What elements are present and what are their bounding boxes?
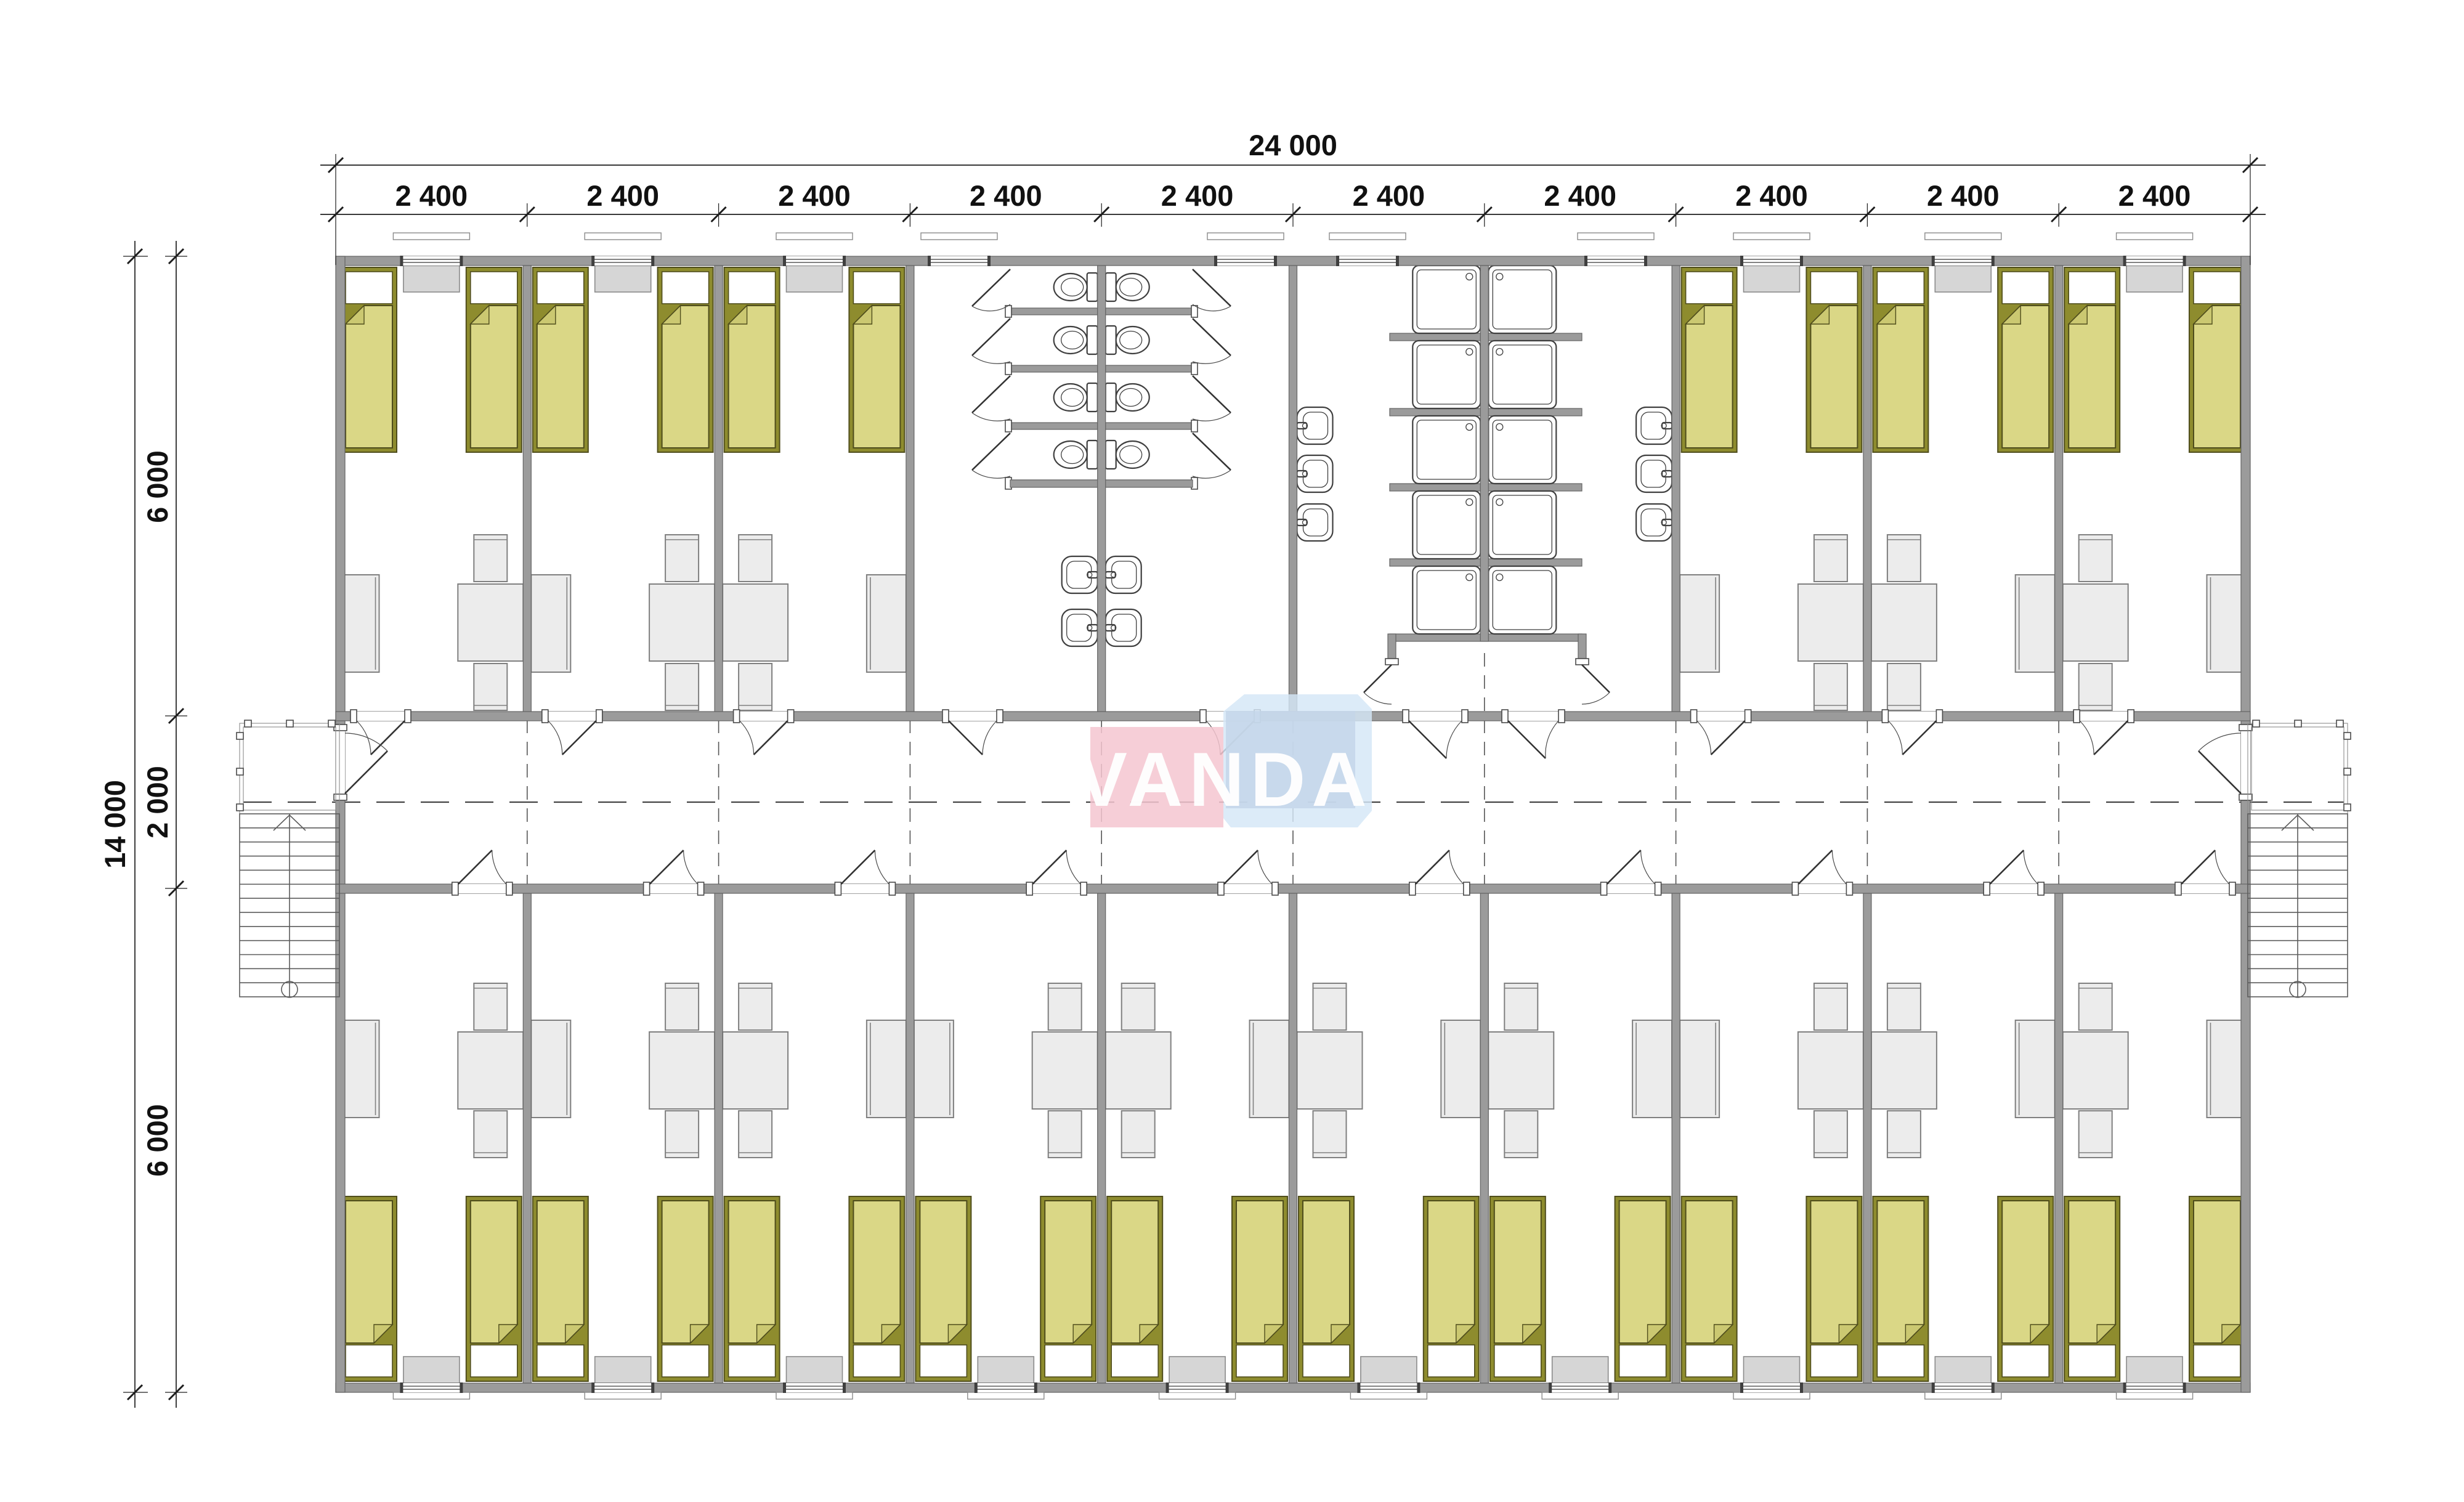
landing-post <box>237 804 243 811</box>
window-jamb <box>2183 1382 2186 1393</box>
shower-lobby-door-arc <box>1364 692 1392 704</box>
bed-blanket <box>920 1201 967 1343</box>
door-jamb <box>698 882 704 895</box>
wardrobe <box>1680 575 1719 672</box>
wardrobe <box>531 575 570 672</box>
window-jamb <box>1336 256 1339 266</box>
sink <box>1297 504 1333 541</box>
radiator <box>2126 1357 2182 1383</box>
corridor-wall-bottom <box>336 884 2250 893</box>
door-opening <box>2080 712 2128 721</box>
sink <box>1636 504 1672 541</box>
door-jamb <box>942 710 949 723</box>
bed <box>1873 267 1928 452</box>
bed <box>658 1196 713 1381</box>
partition-wall-top <box>1289 266 1297 712</box>
bed-blanket <box>1494 1201 1541 1343</box>
door-opening <box>1798 884 1846 893</box>
door-jamb <box>1691 710 1697 723</box>
chair <box>474 1111 507 1158</box>
sink <box>1636 455 1672 492</box>
bed <box>849 267 904 452</box>
entrance-landing-inner <box>2251 727 2344 810</box>
toilet-stall-door-arc <box>1193 304 1231 311</box>
window-sill <box>1350 1392 1427 1399</box>
dimension-module-width: 2 400 <box>1544 179 1616 212</box>
window-jamb <box>1740 1382 1743 1393</box>
window-sill <box>585 1392 661 1399</box>
door-jamb <box>1403 710 1409 723</box>
landing-post <box>2344 804 2351 811</box>
partition-wall-bottom <box>1098 893 1106 1383</box>
door-jamb <box>734 710 740 723</box>
door-jamb <box>889 882 895 895</box>
door-jamb <box>1385 659 1398 665</box>
window-sill <box>1733 1392 1810 1399</box>
door-jamb <box>2038 882 2044 895</box>
bed <box>2064 267 2120 452</box>
window-jamb <box>1932 256 1935 266</box>
chair <box>1814 983 1847 1030</box>
bed-pillow <box>1494 1345 1541 1377</box>
door-swing-arc <box>740 721 754 755</box>
toilet-stall-door-arc <box>972 470 1010 478</box>
shower-lobby-door-leaf <box>1582 665 1610 692</box>
bed <box>341 267 397 452</box>
door-jamb <box>596 710 602 723</box>
door-leaf <box>2181 850 2215 884</box>
window-jamb <box>975 1382 978 1393</box>
door-jamb <box>1464 882 1470 895</box>
window-opening <box>402 1383 460 1392</box>
bed-pillow <box>1877 272 1924 304</box>
bed <box>1232 1196 1287 1381</box>
chair <box>2079 664 2112 710</box>
landing-post <box>237 768 243 775</box>
window-opening <box>1934 256 1992 266</box>
wc-toilet <box>1106 273 1149 301</box>
wc-tank <box>1106 326 1116 354</box>
wall-post <box>1005 420 1011 432</box>
door-jamb <box>835 882 841 895</box>
toilet-stall-door-arc <box>1193 470 1231 478</box>
wc-bowl <box>1116 274 1149 301</box>
door-opening <box>336 730 345 795</box>
door-jamb <box>1655 882 1661 895</box>
window-jamb <box>843 1382 846 1393</box>
chair <box>1814 535 1847 582</box>
door-opening <box>1032 884 1080 893</box>
bed-pillow <box>346 1345 392 1377</box>
dimension-total-width: 24 000 <box>1249 129 1337 161</box>
shower-tray <box>1488 341 1556 408</box>
window-jamb <box>591 256 594 266</box>
bed-pillow <box>662 272 709 304</box>
table <box>1871 1032 1937 1109</box>
window-opening <box>1217 256 1275 266</box>
bed-blanket <box>537 1201 584 1343</box>
radiator <box>787 266 843 292</box>
chair <box>474 664 507 710</box>
door-opening <box>841 884 889 893</box>
bed-pillow <box>1045 1345 1092 1377</box>
bed-pillow <box>2002 272 2049 304</box>
window <box>1578 233 1654 266</box>
door-opening <box>2241 730 2250 795</box>
bed-pillow <box>1303 1345 1350 1377</box>
bed-blanket <box>537 306 584 448</box>
wc-tank <box>1106 440 1116 469</box>
window-sill <box>1925 233 2001 240</box>
dining-set <box>1297 983 1481 1158</box>
wc-bowl <box>1116 384 1149 411</box>
chair <box>1814 664 1847 710</box>
wardrobe <box>531 1020 570 1118</box>
chair <box>665 983 699 1030</box>
bed-pillow <box>471 1345 517 1377</box>
window-jamb <box>460 256 463 266</box>
bed-pillow <box>1619 1345 1666 1377</box>
bed <box>1998 1196 2053 1381</box>
toilet-stall-door-leaf <box>1193 319 1231 355</box>
radiator <box>787 1357 843 1383</box>
partition-wall-bottom <box>1672 893 1680 1383</box>
toilet-stall-door-arc <box>972 355 1010 363</box>
dimension-height-segment-top: 6 000 <box>141 450 174 523</box>
dimension-module-width: 2 400 <box>586 179 659 212</box>
door-opening <box>1508 712 1558 721</box>
dimension-module-width: 2 400 <box>2118 179 2191 212</box>
window-jamb <box>460 1382 463 1393</box>
bed-blanket <box>729 306 776 448</box>
window <box>1207 233 1284 266</box>
dining-set <box>723 983 906 1158</box>
door-swing-arc <box>345 733 387 751</box>
door-jamb <box>1272 882 1278 895</box>
window-jamb <box>1166 1382 1169 1393</box>
wardrobe <box>2207 1020 2247 1118</box>
door-leaf <box>1607 850 1641 884</box>
radiator <box>1744 266 1800 292</box>
bed-blanket <box>1877 306 1924 448</box>
bed-pillow <box>920 1345 967 1377</box>
bed-pillow <box>729 1345 776 1377</box>
window-sill <box>585 233 661 240</box>
wardrobe <box>914 1020 954 1118</box>
bed-blanket <box>471 1201 517 1343</box>
door-opening <box>357 712 405 721</box>
door-jamb <box>788 710 794 723</box>
shower-lobby-stub <box>1578 634 1586 659</box>
chair <box>2079 1111 2112 1158</box>
table <box>1032 1032 1098 1109</box>
bed <box>533 1196 588 1381</box>
window-opening <box>2126 256 2184 266</box>
table <box>1871 584 1937 661</box>
bed-blanket <box>1045 1201 1092 1343</box>
wall-post <box>1191 363 1198 375</box>
window-jamb <box>1992 256 1995 266</box>
radiator <box>595 266 651 292</box>
door-swing-arc <box>2215 850 2229 884</box>
bed-blanket <box>853 306 900 448</box>
table <box>1488 1032 1554 1109</box>
dining-set <box>914 983 1098 1158</box>
bed-blanket <box>853 1201 900 1343</box>
toilet-stall-door-arc <box>1193 413 1231 421</box>
window-opening <box>1169 1383 1226 1392</box>
window <box>776 233 853 266</box>
partition-wall-top <box>1098 266 1106 712</box>
bed-pillow <box>2194 272 2240 304</box>
landing-post <box>2336 720 2343 727</box>
wardrobe <box>867 575 906 672</box>
window-sill <box>2117 233 2193 240</box>
table <box>649 1032 715 1109</box>
wardrobe <box>1680 1020 1719 1118</box>
door-leaf <box>1416 850 1449 884</box>
toilet-stall-door-arc <box>972 413 1010 421</box>
window-jamb <box>987 256 991 266</box>
door-leaf <box>2094 721 2128 755</box>
dining-set <box>1106 983 1289 1158</box>
entrance-landing-inner <box>243 727 336 810</box>
bed-blanket <box>662 1201 709 1343</box>
door-opening <box>1416 884 1464 893</box>
wc-tank <box>1106 383 1116 412</box>
door-jamb <box>1218 882 1224 895</box>
chair <box>2079 535 2112 582</box>
window-sill <box>776 233 853 240</box>
window-sill <box>1925 1392 2001 1399</box>
door-jamb <box>1882 710 1888 723</box>
window-jamb <box>400 1382 403 1393</box>
toilet-stall-door-leaf <box>1193 269 1231 306</box>
wall-post <box>1005 363 1011 375</box>
wall-post <box>1005 306 1011 317</box>
window-jamb <box>1800 1382 1803 1393</box>
bed-pillow <box>662 1345 709 1377</box>
wardrobe <box>2016 1020 2055 1118</box>
window-jamb <box>1992 1382 1995 1393</box>
vanda-logo-text: VANDA <box>1076 737 1373 822</box>
bed <box>1615 1196 1671 1381</box>
window-jamb <box>783 256 786 266</box>
wc-bowl <box>1054 384 1087 411</box>
bed-blanket <box>729 1201 776 1343</box>
dining-set <box>723 535 906 710</box>
door-jamb <box>405 710 411 723</box>
bed <box>1682 1196 1737 1381</box>
door-opening <box>650 884 698 893</box>
dimension-height-segment-corridor: 2 000 <box>141 766 174 838</box>
bed <box>1107 1196 1162 1381</box>
dimension-module-width: 2 400 <box>970 179 1042 212</box>
door-leaf <box>458 850 492 884</box>
partition-wall-top <box>1480 266 1488 641</box>
bed-pillow <box>729 272 776 304</box>
bed-blanket <box>1111 1201 1158 1343</box>
window <box>1350 1382 1427 1399</box>
sink <box>1636 407 1672 444</box>
window-sill <box>776 1392 853 1399</box>
dimension-height-segment-bottom: 6 000 <box>141 1104 174 1177</box>
bed-pillow <box>1686 1345 1733 1377</box>
bed-blanket <box>1686 306 1733 448</box>
wardrobe <box>867 1020 906 1118</box>
window-opening <box>785 256 843 266</box>
door-swing-arc <box>684 850 698 884</box>
window-jamb <box>1549 1382 1552 1393</box>
chair <box>1814 1111 1847 1158</box>
window-jamb <box>1034 1382 1037 1393</box>
table <box>1106 1032 1171 1109</box>
door-leaf <box>1409 721 1446 758</box>
door-jamb <box>2073 710 2080 723</box>
partition-wall-bottom <box>906 893 914 1383</box>
wc-tank <box>1087 383 1098 412</box>
toilet-stall-door-leaf <box>972 319 1010 355</box>
exterior-wall-left <box>336 256 345 1392</box>
door-swing-arc <box>1888 721 1902 755</box>
toilet-stall-door-arc <box>1193 355 1231 363</box>
partition-wall-top <box>523 266 531 712</box>
window <box>2117 1382 2193 1399</box>
door-swing-arc <box>2080 721 2094 755</box>
door-leaf <box>1902 721 1936 755</box>
door-opening <box>740 712 788 721</box>
radiator <box>1935 1357 1991 1383</box>
window-opening <box>977 1383 1035 1392</box>
wc-toilet <box>1106 326 1149 354</box>
toilet-stall-partition <box>1106 365 1193 372</box>
floor-plan: 2 4002 4002 4002 4002 4002 4002 4002 400… <box>0 0 2464 1502</box>
chair <box>739 664 772 710</box>
door-opening <box>1224 884 1272 893</box>
door-opening <box>1990 884 2038 893</box>
bed <box>1490 1196 1546 1381</box>
bed-blanket <box>2069 306 2115 448</box>
bed-blanket <box>1236 1201 1283 1343</box>
door-jamb <box>2128 710 2134 723</box>
window-opening <box>1339 256 1396 266</box>
door-leaf <box>650 850 684 884</box>
shower-tray <box>1412 491 1480 559</box>
bed-blanket <box>2194 1201 2240 1343</box>
window-sill <box>1159 1392 1236 1399</box>
floor-plan-canvas: 2 4002 4002 4002 4002 4002 4002 4002 400… <box>0 0 2464 1502</box>
toilet-stall-door-leaf <box>1193 433 1231 470</box>
radiator <box>595 1357 651 1383</box>
bed <box>1873 1196 1928 1381</box>
dining-set <box>1871 535 2055 710</box>
window-jamb <box>1226 1382 1229 1393</box>
window-jamb <box>1396 256 1399 266</box>
bed-blanket <box>1428 1201 1475 1343</box>
window-opening <box>594 256 652 266</box>
window-jamb <box>843 256 846 266</box>
door-leaf <box>841 850 875 884</box>
bed <box>724 267 780 452</box>
landing-post <box>245 720 251 727</box>
bed-pillow <box>1428 1345 1475 1377</box>
window-jamb <box>1274 256 1277 266</box>
door-swing-arc <box>875 850 889 884</box>
radiator <box>1744 1357 1800 1383</box>
chair <box>1122 983 1155 1030</box>
window <box>585 233 661 266</box>
shower-tray <box>1412 341 1480 408</box>
partition-wall-bottom <box>2055 893 2063 1383</box>
door-jamb <box>1558 710 1565 723</box>
window-jamb <box>1584 256 1587 266</box>
dimension-module-width: 2 400 <box>1735 179 1808 212</box>
wardrobe <box>1250 1020 1289 1118</box>
door-opening <box>458 884 506 893</box>
window <box>393 1382 469 1399</box>
chair <box>474 535 507 582</box>
bed-pillow <box>1111 1345 1158 1377</box>
toilet-stall-partition <box>1010 308 1098 315</box>
door-opening <box>1607 884 1655 893</box>
wc-toilet <box>1054 273 1098 301</box>
partition-wall-top <box>1672 266 1680 712</box>
dining-set <box>2063 983 2247 1158</box>
window-sill <box>1733 233 1810 240</box>
bed-blanket <box>2069 1201 2115 1343</box>
landing-post <box>286 720 293 727</box>
door-opening <box>1409 712 1462 721</box>
window-sill <box>2117 1392 2193 1399</box>
door-jamb <box>1200 710 1206 723</box>
door-leaf <box>562 721 596 755</box>
shower-tray-outer <box>1412 416 1480 484</box>
sink <box>1062 556 1098 593</box>
window-opening <box>1743 1383 1801 1392</box>
entrance-landing <box>2248 723 2348 814</box>
bed-blanket <box>346 306 392 448</box>
bed <box>1299 1196 1354 1381</box>
door-swing-arc <box>1446 721 1462 758</box>
window-jamb <box>1357 1382 1360 1393</box>
chair <box>1887 1111 1921 1158</box>
bed-blanket <box>471 306 517 448</box>
chair <box>1048 983 1082 1030</box>
radiator <box>1552 1357 1608 1383</box>
bed-pillow <box>537 1345 584 1377</box>
window <box>921 233 997 266</box>
bed <box>849 1196 904 1381</box>
bed <box>341 1196 397 1381</box>
window <box>1542 1382 1618 1399</box>
wardrobe <box>340 1020 379 1118</box>
window <box>1159 1382 1236 1399</box>
partition-wall-bottom <box>715 893 723 1383</box>
bed-pillow <box>1810 1345 1857 1377</box>
window-sill <box>1329 233 1406 240</box>
window-jamb <box>1417 1382 1420 1393</box>
partition-wall-bottom <box>1480 893 1488 1383</box>
door-leaf <box>754 721 788 755</box>
bed-pillow <box>1810 272 1857 304</box>
bed <box>1806 1196 1862 1381</box>
chair <box>1887 983 1921 1030</box>
chair <box>1048 1111 1082 1158</box>
sink <box>1297 407 1333 444</box>
shower-tray-outer <box>1488 416 1556 484</box>
wardrobe <box>2016 575 2055 672</box>
radiator <box>2126 266 2182 292</box>
